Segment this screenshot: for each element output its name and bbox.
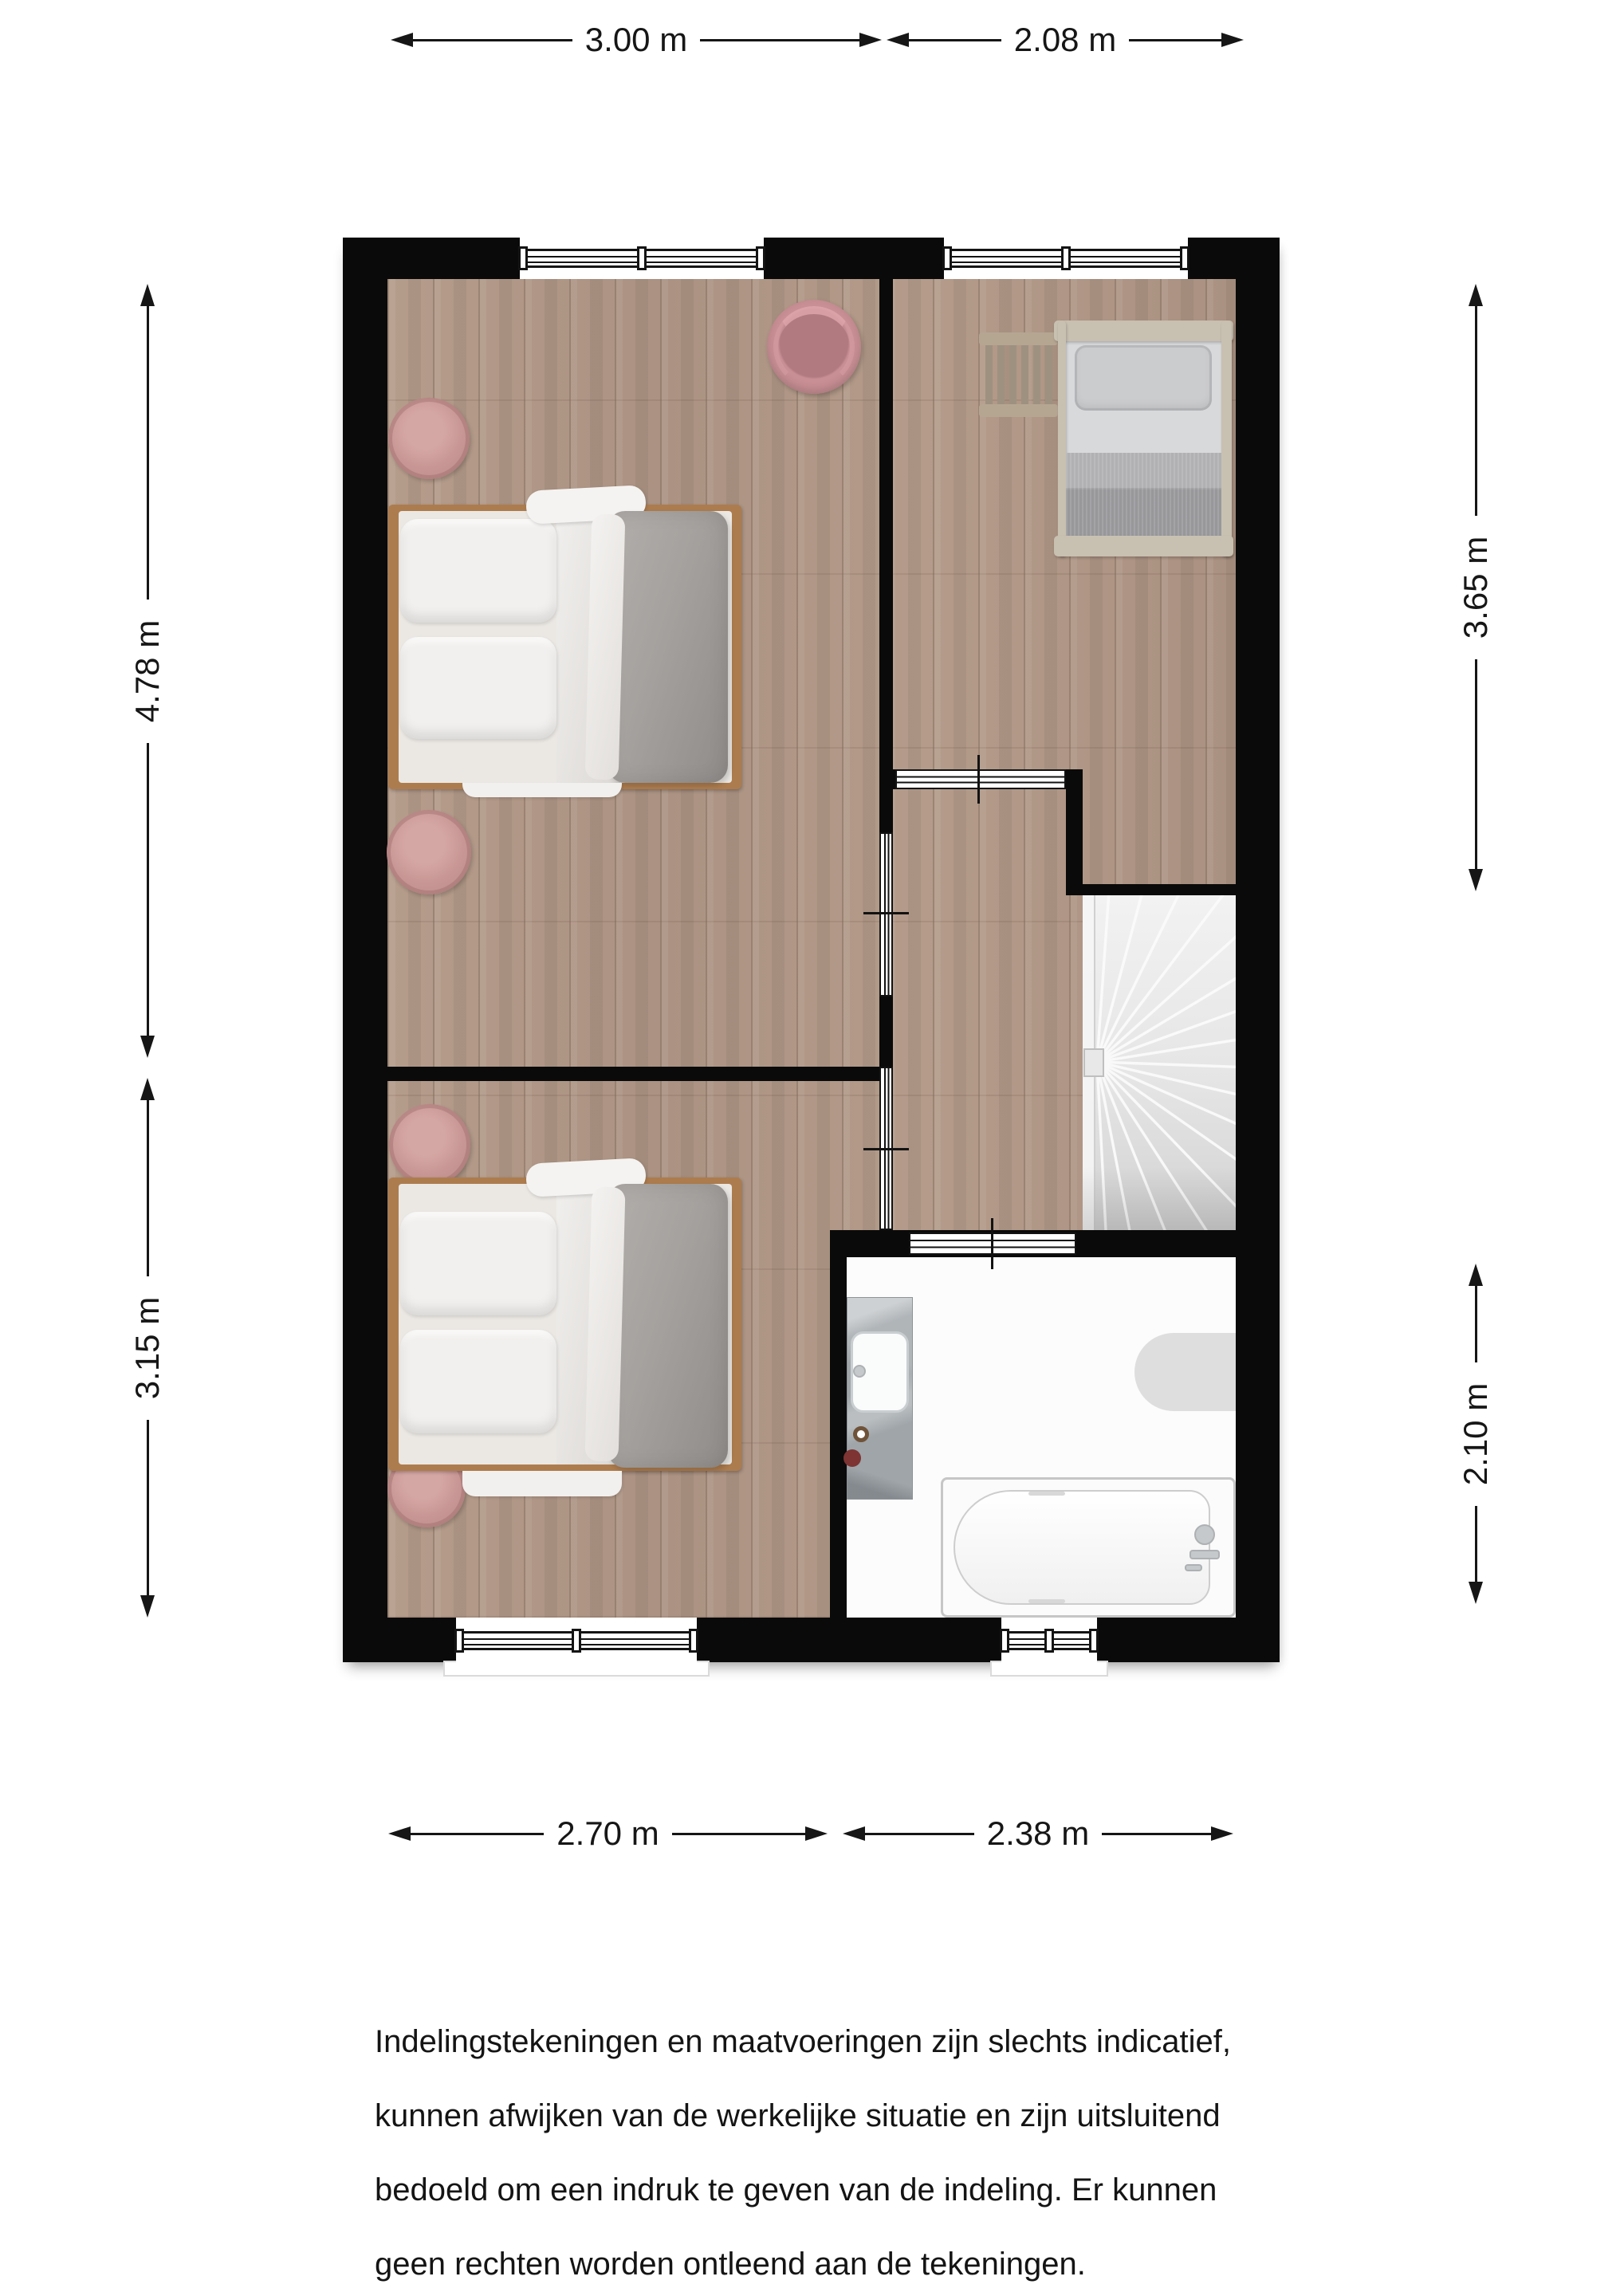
duvet-fold <box>585 1187 626 1462</box>
duvet <box>608 1184 728 1468</box>
bathtub-grip <box>1028 1492 1065 1496</box>
dim-right-1: 3.65 m <box>1457 284 1494 891</box>
round-rug <box>388 398 470 479</box>
bathtub-faucet-icon <box>1185 1564 1202 1571</box>
dim-top-2: 2.08 m <box>887 22 1244 58</box>
pillow <box>400 637 556 739</box>
dim-bottom-1: 2.70 m <box>388 1815 828 1852</box>
round-rug <box>389 1104 470 1185</box>
bathroom-accessory-jar <box>843 1449 861 1467</box>
door-hinge-tick <box>863 912 909 914</box>
sheet-drape <box>462 1471 622 1496</box>
dim-right-2: 2.10 m <box>1457 1264 1494 1604</box>
window-sill <box>990 1661 1108 1677</box>
arrowhead-icon <box>1469 284 1483 306</box>
arrowhead-icon <box>391 33 413 47</box>
window-bathroom <box>1001 1618 1097 1662</box>
dim-left-1: 4.78 m <box>129 284 166 1058</box>
pillow <box>400 519 556 623</box>
arrowhead-icon <box>859 33 882 47</box>
pillow <box>400 1330 556 1433</box>
arrowhead-icon <box>140 1036 155 1058</box>
bathtub-faucet-icon <box>1189 1550 1220 1559</box>
arrowhead-icon <box>140 1078 155 1100</box>
arrowhead-icon <box>1221 33 1244 47</box>
dim-label: 2.10 m <box>1459 1370 1492 1497</box>
dim-label: 3.00 m <box>572 23 700 57</box>
staircase <box>1083 895 1236 1230</box>
door-hinge-tick <box>863 1148 909 1150</box>
bathtub-faucet-icon <box>1194 1524 1215 1545</box>
window-sill <box>443 1661 710 1677</box>
disclaimer-line: geen rechten worden ontleend aan de teke… <box>375 2227 1315 2296</box>
arrowhead-icon <box>140 284 155 306</box>
pillow <box>1075 345 1212 411</box>
wall-middle-between-doors <box>879 997 893 1067</box>
stair-newel-post <box>1084 1049 1103 1076</box>
disclaimer-line: Indelingstekeningen en maatvoeringen zij… <box>375 2005 1315 2079</box>
wall-jog <box>1066 769 1083 895</box>
arrowhead-icon <box>1211 1826 1233 1841</box>
dim-label: 2.70 m <box>544 1817 671 1850</box>
single-bed-rail <box>1058 320 1066 556</box>
tub-chair <box>767 300 861 394</box>
arrowhead-icon <box>1469 1582 1483 1604</box>
dim-left-2: 3.15 m <box>129 1078 166 1618</box>
ladder <box>979 404 1058 417</box>
arrowhead-icon <box>805 1826 828 1841</box>
bathroom-accessory-ring <box>853 1426 869 1442</box>
dim-label: 2.38 m <box>974 1817 1102 1850</box>
arrowhead-icon <box>388 1826 411 1841</box>
pillow <box>400 1212 556 1315</box>
ladder <box>979 332 1058 345</box>
door-hinge-tick <box>991 1218 993 1269</box>
duvet-fold <box>585 514 626 780</box>
faucet-icon <box>853 1365 866 1378</box>
wall-bathroom-west <box>830 1230 847 1662</box>
arrowhead-icon <box>140 1595 155 1618</box>
duvet <box>608 511 728 783</box>
floor-plan-image: 3.00 m 2.08 m 2.70 m 2.38 m 4.78 m 3.15 … <box>0 0 1624 2296</box>
arrowhead-icon <box>843 1826 865 1841</box>
disclaimer-line: kunnen afwijken van de werkelijke situat… <box>375 2079 1315 2153</box>
door-hinge-tick <box>977 755 980 804</box>
sheet-drape <box>462 783 622 797</box>
wall-middle-upper <box>879 279 893 832</box>
single-bed-headboard <box>1054 320 1233 341</box>
window-bedroom-1 <box>520 238 764 279</box>
dim-label: 3.15 m <box>131 1284 164 1411</box>
dim-label: 3.65 m <box>1459 524 1492 651</box>
round-rug <box>387 810 471 894</box>
arrowhead-icon <box>1469 1264 1483 1286</box>
disclaimer-line: bedoeld om een indruk te geven van de in… <box>375 2153 1315 2227</box>
dim-bottom-2: 2.38 m <box>843 1815 1233 1852</box>
wall-above-stairs <box>1066 884 1236 895</box>
bathtub-grip <box>1028 1599 1065 1603</box>
single-bed-footboard <box>1054 536 1233 556</box>
door-bedroom-1 <box>879 832 893 997</box>
dim-label: 4.78 m <box>131 607 164 734</box>
blanket <box>1066 453 1221 536</box>
dim-label: 2.08 m <box>1001 23 1129 57</box>
window-bedroom-3 <box>944 238 1188 279</box>
wall-bedroom-divider <box>387 1067 879 1081</box>
door-bedroom-3 <box>895 769 1066 789</box>
disclaimer-text: Indelingstekeningen en maatvoeringen zij… <box>375 2005 1315 2296</box>
bathtub-basin <box>954 1490 1210 1605</box>
window-bedroom-2-south <box>456 1618 697 1662</box>
single-bed-rail <box>1221 320 1232 556</box>
toilet <box>1134 1333 1236 1411</box>
arrowhead-icon <box>1469 869 1483 891</box>
dim-top-1: 3.00 m <box>391 22 882 58</box>
arrowhead-icon <box>887 33 909 47</box>
